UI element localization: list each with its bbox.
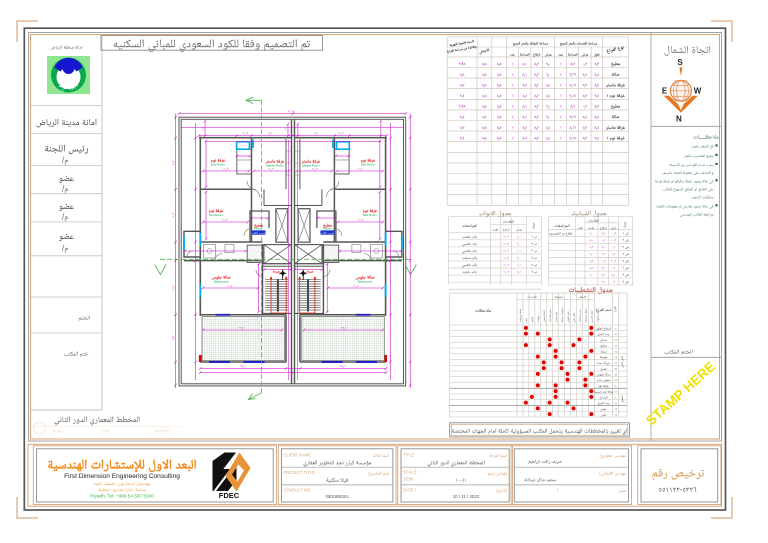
svg-text:TITLE: TITLE	[403, 452, 414, 457]
svg-text:N: N	[676, 115, 682, 124]
svg-text:CLIENT NAME: CLIENT NAME	[284, 452, 312, 457]
svg-text:SCALE: SCALE	[52, 429, 64, 433]
svg-text:E: E	[662, 86, 668, 95]
svg-text:Bed Room: Bed Room	[211, 163, 225, 167]
svg-text:Sitting area: Sitting area	[214, 280, 229, 284]
svg-text:CONTACT NO.: CONTACT NO.	[284, 488, 312, 493]
svg-text:0501888161: 0501888161	[326, 494, 350, 499]
svg-text:SCALE :: SCALE :	[403, 470, 419, 475]
svg-text:Riyadh, Tel: +966 54 597 5000: Riyadh, Tel: +966 54 597 5000	[90, 493, 154, 498]
svg-text:1/100: 1/100	[403, 477, 414, 482]
svg-text:METERS: METERS	[155, 429, 171, 433]
svg-text:Kitchen: Kitchen	[323, 227, 332, 231]
svg-text:FDEC: FDEC	[219, 491, 240, 500]
svg-text:DATE /: DATE /	[403, 488, 417, 493]
svg-text:Bed Room: Bed Room	[363, 213, 377, 217]
svg-text:Sitting area: Sitting area	[358, 280, 373, 284]
svg-text:YRS: YRS	[102, 429, 110, 433]
svg-text:Kitchen: Kitchen	[254, 227, 263, 231]
svg-text:Bed Room: Bed Room	[209, 213, 223, 217]
svg-text:Master Room: Master Room	[266, 164, 284, 168]
svg-text:First Dimension Engineering Co: First Dimension Engineering Consulting	[64, 473, 180, 480]
svg-text:Master Room: Master Room	[302, 164, 320, 168]
svg-text:Bed Room: Bed Room	[361, 163, 375, 167]
svg-text:W: W	[694, 86, 702, 95]
svg-text:10 / 11 / 2022: 10 / 11 / 2022	[453, 494, 480, 499]
svg-text:PROJECT TITLE: PROJECT TITLE	[284, 470, 316, 475]
svg-text:S: S	[677, 58, 683, 67]
